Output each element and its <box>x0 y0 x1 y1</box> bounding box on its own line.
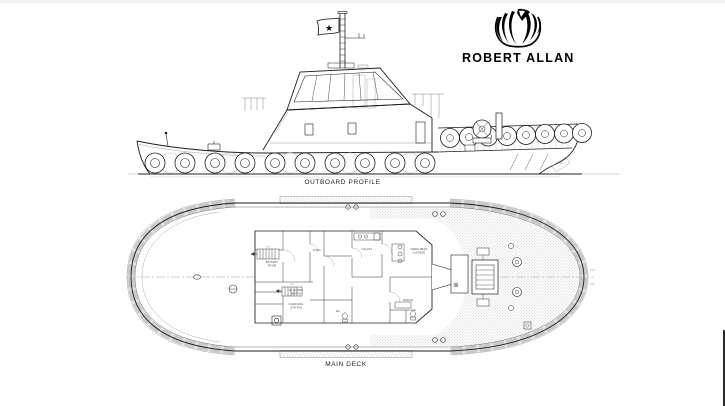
room-label: HVAC <box>313 248 320 252</box>
room-label: CREW MESS <box>411 247 428 251</box>
side-fender-tires <box>145 153 435 173</box>
outboard-profile-drawing: ★ <box>120 5 620 185</box>
room-label: SWITCH <box>291 291 302 295</box>
room-label: CHARGING <box>289 302 304 306</box>
room-label: ROOM <box>268 263 276 267</box>
room-label: /LOUNGE <box>413 250 426 254</box>
wheelhouse-profile <box>287 63 410 110</box>
drawing-page: ROBERT ALLAN <box>0 0 725 406</box>
room-label: WC <box>336 309 341 313</box>
profile-caption: OUTBOARD PROFILE <box>120 179 565 186</box>
flag-icon: ★ <box>317 18 339 35</box>
side-fender-strip-bottom <box>280 351 412 358</box>
stern-draft-marks <box>510 154 570 172</box>
main-deck-plan-drawing: BATTERY ROOM HVAC GALLEY CREW MESS /LOUN… <box>120 192 600 362</box>
room-label: BATTERY <box>266 260 279 264</box>
room-label: AC SHORE <box>289 288 304 292</box>
flag-star-icon: ★ <box>325 23 333 33</box>
top-edge-bar <box>0 0 725 3</box>
room-label: STATION <box>290 305 302 309</box>
deck-caption: MAIN DECK <box>120 361 572 368</box>
deckhouse-profile <box>263 104 432 152</box>
mast <box>338 12 365 69</box>
room-label: GALLEY <box>362 247 373 251</box>
side-fender-strip-top <box>280 197 412 204</box>
room-label: OFFICE <box>403 298 413 302</box>
